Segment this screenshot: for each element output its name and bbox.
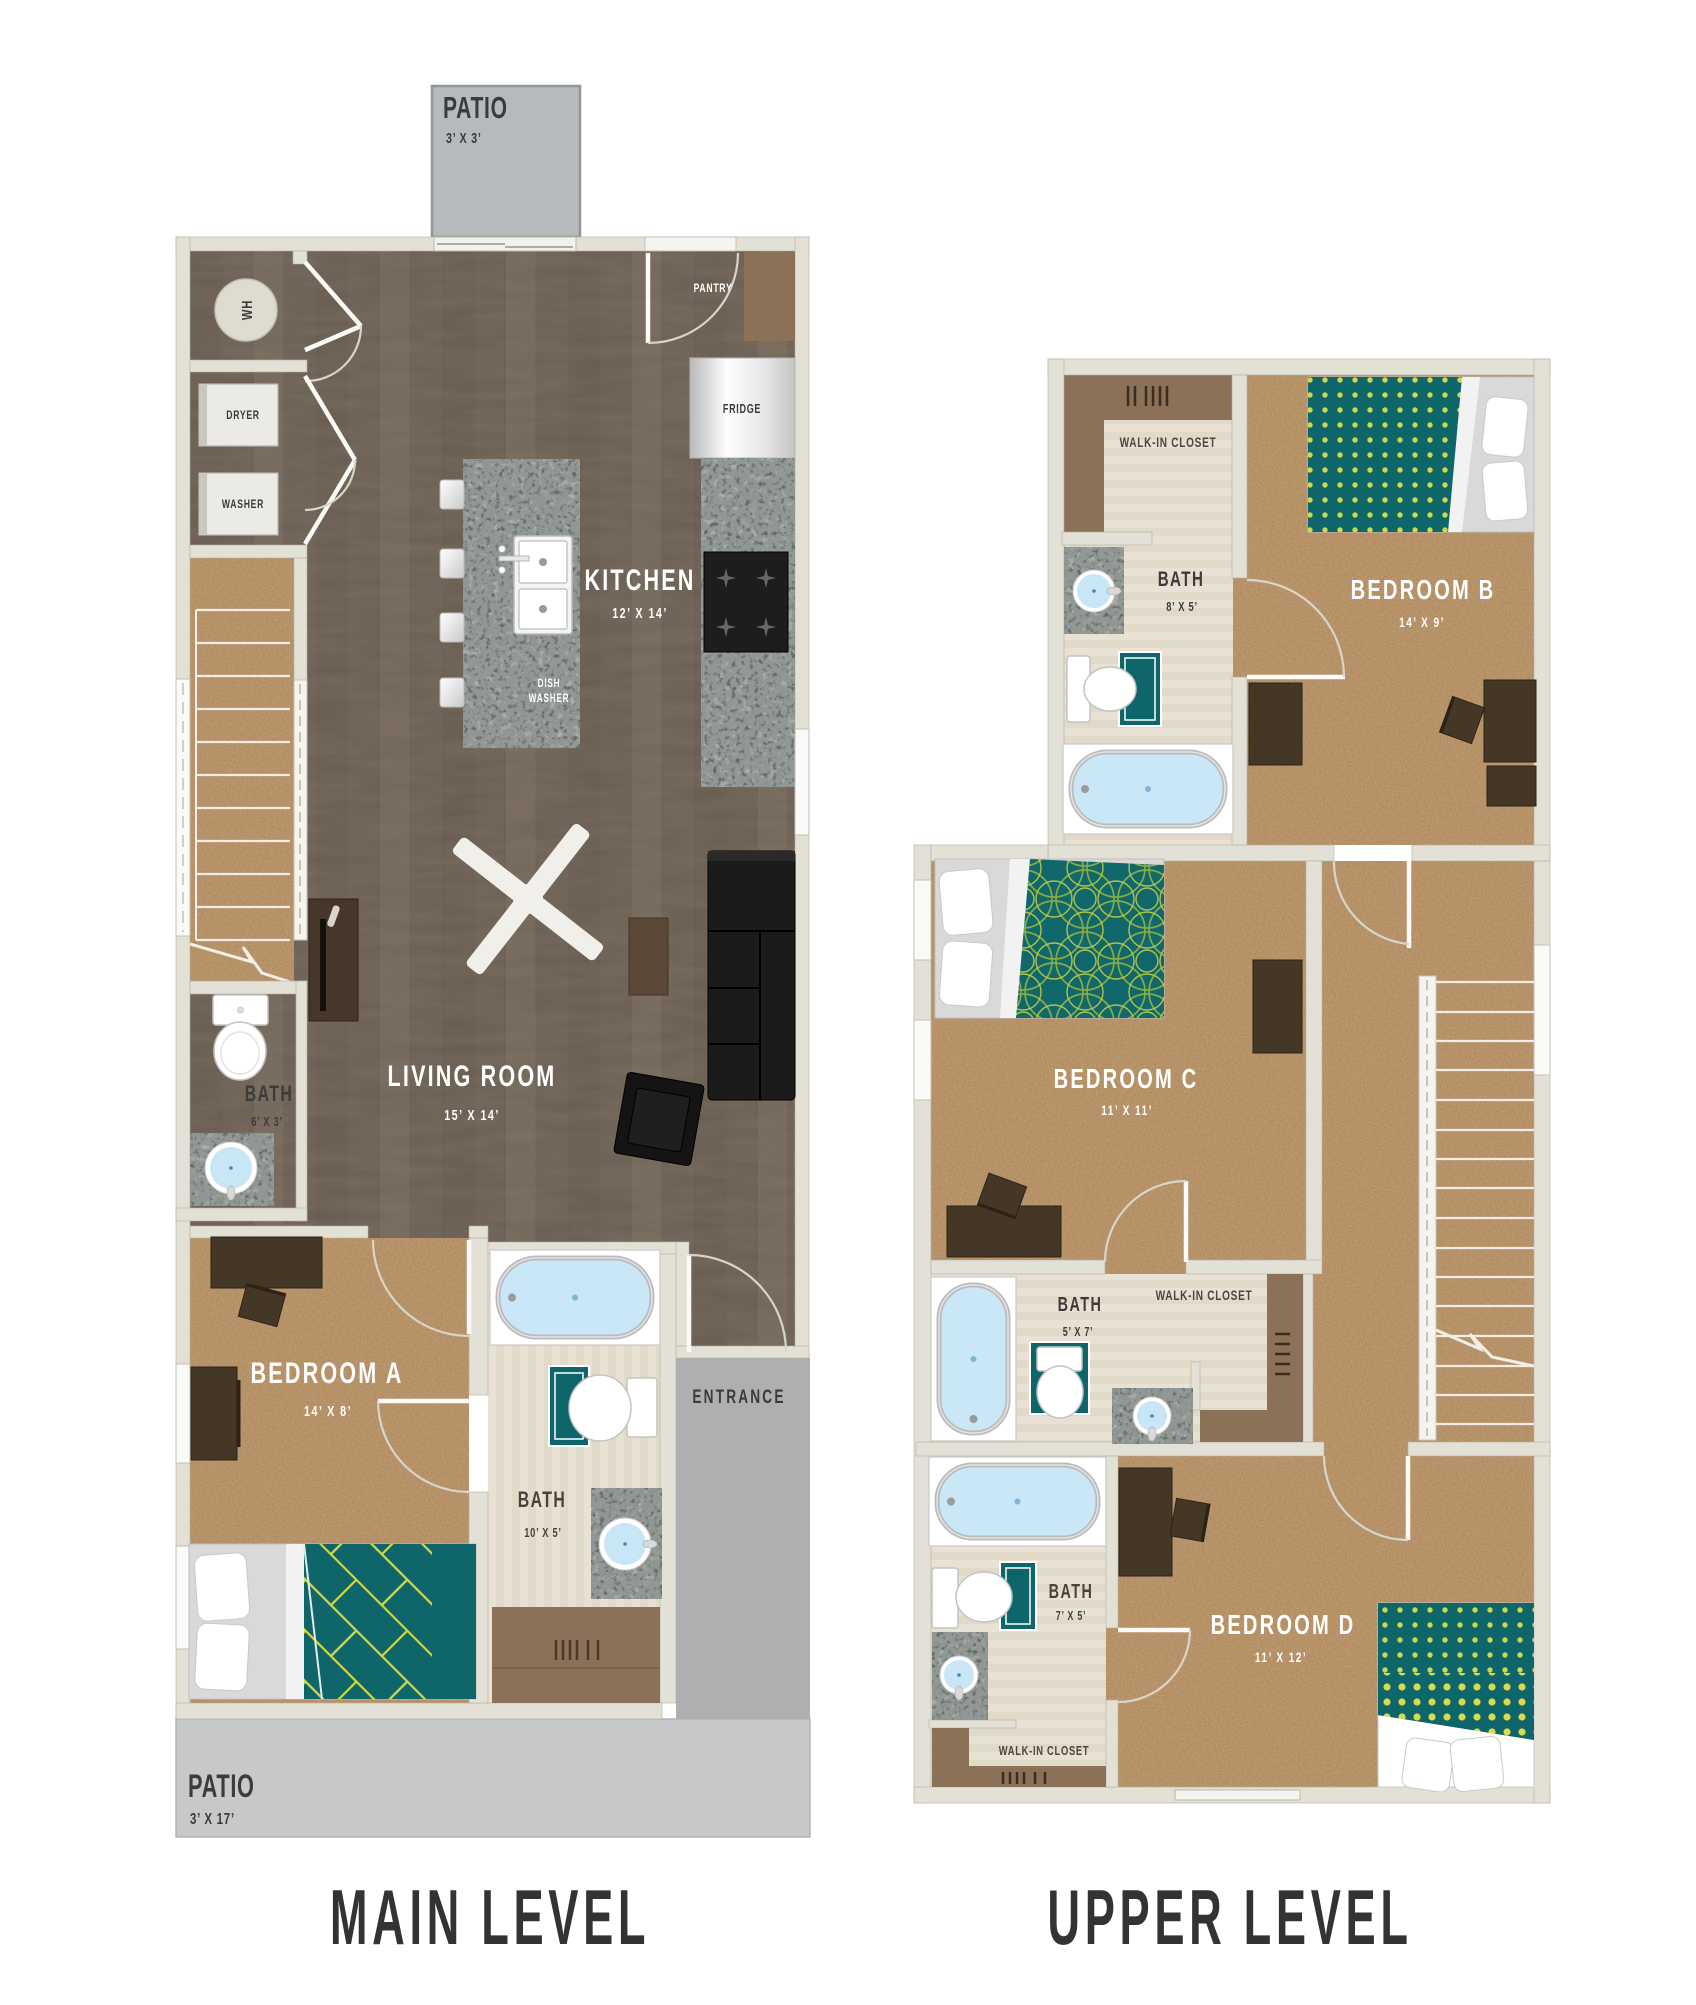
svg-text:12’ X 14’: 12’ X 14’ [612,604,668,621]
svg-text:BEDROOM C: BEDROOM C [1054,1064,1199,1095]
svg-text:BATH: BATH [245,1083,294,1107]
svg-text:14’ X 9’: 14’ X 9’ [1399,614,1445,630]
svg-text:PATIO: PATIO [443,90,508,125]
svg-text:BATH: BATH [518,1489,567,1513]
svg-text:11’ X 12’: 11’ X 12’ [1255,1649,1307,1665]
svg-text:PANTRY: PANTRY [694,283,733,296]
svg-text:BATH: BATH [1049,1580,1094,1603]
svg-text:WALK-IN CLOSET: WALK-IN CLOSET [1120,434,1217,450]
svg-text:11’ X 11’: 11’ X 11’ [1101,1102,1153,1118]
svg-text:WASHER: WASHER [529,693,570,706]
svg-text:WALK-IN CLOSET: WALK-IN CLOSET [999,1745,1090,1759]
svg-text:DISH: DISH [538,678,561,691]
svg-text:DRYER: DRYER [226,410,259,423]
svg-text:WALK-IN CLOSET: WALK-IN CLOSET [1156,1287,1253,1303]
svg-text:15’ X 14’: 15’ X 14’ [444,1106,500,1123]
svg-text:ENTRANCE: ENTRANCE [692,1386,785,1408]
svg-text:8’ X 5’: 8’ X 5’ [1166,601,1198,615]
svg-text:UPPER LEVEL: UPPER LEVEL [1047,1873,1412,1961]
svg-text:7’ X 5’: 7’ X 5’ [1056,1610,1087,1624]
svg-text:10’ X 5’: 10’ X 5’ [524,1527,561,1541]
svg-text:14’ X 8’: 14’ X 8’ [304,1402,352,1419]
svg-text:5’ X 7’: 5’ X 7’ [1063,1326,1094,1340]
svg-text:BEDROOM B: BEDROOM B [1351,575,1496,606]
svg-text:BEDROOM A: BEDROOM A [251,1355,404,1389]
svg-text:BEDROOM D: BEDROOM D [1211,1610,1356,1641]
svg-text:3’ X 17’: 3’ X 17’ [190,1809,235,1827]
svg-text:6’ X 3’: 6’ X 3’ [251,1116,283,1130]
svg-text:BATH: BATH [1058,1293,1103,1316]
svg-text:MAIN LEVEL: MAIN LEVEL [330,1873,650,1961]
svg-text:WH: WH [238,300,255,320]
svg-text:BATH: BATH [1158,566,1205,590]
svg-text:FRIDGE: FRIDGE [723,403,761,417]
svg-text:KITCHEN: KITCHEN [584,562,695,596]
svg-text:PATIO: PATIO [188,1768,255,1804]
svg-text:LIVING ROOM: LIVING ROOM [388,1058,557,1092]
svg-text:3’ X 3’: 3’ X 3’ [446,129,482,146]
svg-text:WASHER: WASHER [222,499,264,512]
